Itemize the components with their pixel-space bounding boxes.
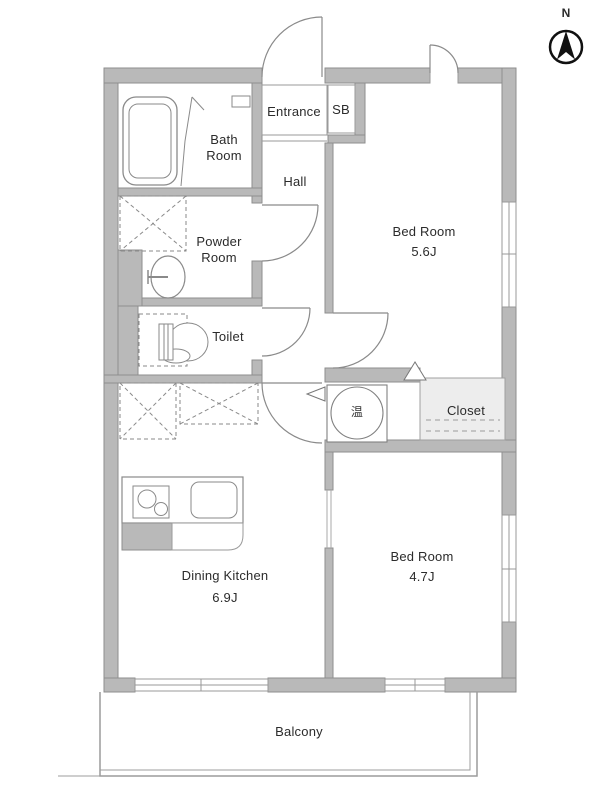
window-bedroom2-east	[502, 515, 516, 622]
washing-machine-area	[120, 196, 186, 251]
powder-line2: Room	[196, 250, 241, 266]
wall-sb-bottom	[328, 135, 365, 143]
door-entrance	[262, 17, 322, 77]
wall-toilet-bottom	[104, 375, 262, 383]
wall-bottom-1	[104, 678, 135, 692]
sliding-partition-dk-bedroom2	[327, 490, 331, 548]
wall-bottom-3	[445, 678, 516, 692]
dk-size: 6.9J	[182, 587, 269, 609]
door-powder-room	[262, 205, 318, 261]
powder-line1: Powder	[196, 234, 241, 249]
bath-folding-door	[181, 97, 204, 186]
room-label-balcony: Balcony	[275, 724, 323, 740]
room-label-bedroom2: Bed Room 4.7J	[390, 547, 453, 587]
bedroom1-name: Bed Room	[392, 224, 455, 239]
floor-plan: N Entrance SB Bath Room Powder Room Toil…	[0, 0, 600, 800]
toilet-tank	[159, 324, 173, 360]
wall-pipe-space-powder	[118, 250, 142, 306]
room-label-closet: Closet	[447, 403, 485, 419]
refrigerator-area	[120, 383, 176, 439]
window-bedroom2-south	[385, 679, 445, 691]
wall-bath-bottom	[118, 188, 262, 196]
wall-bottom-2	[268, 678, 385, 692]
bedroom2-size: 4.7J	[390, 567, 453, 587]
kitchen-sink	[191, 482, 237, 518]
room-label-hall: Hall	[283, 174, 306, 190]
room-label-shoe-box: SB	[332, 102, 350, 118]
bath-line2: Room	[206, 148, 241, 164]
compass-north-label: N	[562, 5, 571, 21]
stove-burner-1	[138, 490, 156, 508]
room-label-bedroom1: Bed Room 5.6J	[392, 222, 455, 262]
bath-line1: Bath	[210, 132, 238, 147]
room-label-entrance: Entrance	[267, 104, 321, 120]
room-label-bath: Bath Room	[206, 132, 241, 164]
bedroom2-name: Bed Room	[390, 549, 453, 564]
wall-pipe-space-toilet	[118, 306, 138, 375]
north-arrow-icon	[557, 31, 575, 60]
bathtub	[123, 97, 177, 185]
door-bedroom1	[333, 313, 388, 368]
door-toilet	[262, 308, 310, 356]
window-bedroom1-east	[502, 202, 516, 307]
toilet-fixture	[139, 314, 208, 366]
room-label-toilet: Toilet	[212, 329, 244, 345]
stove-burner-2	[155, 503, 168, 516]
kitchen-counter	[122, 477, 243, 523]
bedroom1-size: 5.6J	[392, 242, 455, 262]
counter-base	[122, 523, 172, 550]
wall-hall-right	[325, 143, 333, 313]
wall-sb-right	[355, 83, 365, 143]
window-dk-balcony-door	[135, 679, 268, 691]
bath-shelf	[232, 96, 250, 107]
fixtures	[120, 96, 505, 550]
wall-partition-2	[325, 548, 333, 678]
wall-top-2	[325, 68, 430, 83]
wall-partition-1	[325, 452, 333, 490]
window-bedroom1-north	[430, 68, 458, 83]
storage-area	[180, 383, 258, 424]
wash-basin	[148, 256, 185, 298]
wall-hall-left-1	[252, 83, 262, 203]
counter-return	[172, 523, 243, 550]
room-label-powder: Powder Room	[196, 234, 241, 266]
water-heater-label: 温	[351, 404, 363, 420]
opening-marker-left	[307, 387, 325, 401]
wall-top-1	[104, 68, 262, 83]
dk-name: Dining Kitchen	[182, 568, 269, 583]
floor-plan-drawing	[0, 0, 600, 800]
wall-right-1	[502, 68, 516, 202]
compass	[550, 31, 582, 63]
room-label-dining-kitchen: Dining Kitchen 6.9J	[182, 565, 269, 609]
balcony-outline	[58, 692, 477, 776]
